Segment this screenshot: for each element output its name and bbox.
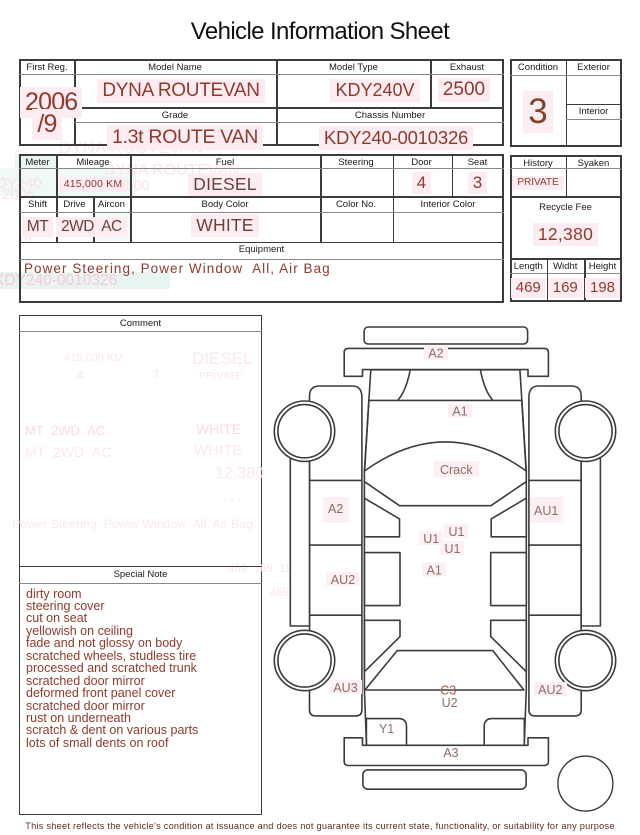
svg-text:U2: U2 bbox=[442, 696, 458, 710]
svg-text:AU2: AU2 bbox=[331, 573, 355, 587]
svg-text:A2: A2 bbox=[328, 502, 343, 516]
svg-text:AU3: AU3 bbox=[333, 681, 357, 695]
svg-text:Crack: Crack bbox=[440, 463, 473, 477]
svg-text:AU1: AU1 bbox=[534, 504, 558, 518]
svg-text:U1: U1 bbox=[449, 525, 465, 539]
svg-text:AU2: AU2 bbox=[538, 683, 562, 697]
svg-text:A1: A1 bbox=[452, 405, 467, 419]
svg-text:Y1: Y1 bbox=[379, 722, 394, 736]
svg-text:A3: A3 bbox=[443, 746, 458, 760]
svg-text:U1: U1 bbox=[423, 532, 439, 546]
svg-text:A1: A1 bbox=[427, 564, 442, 578]
svg-text:A2: A2 bbox=[428, 347, 443, 361]
svg-text:U1: U1 bbox=[445, 542, 461, 556]
